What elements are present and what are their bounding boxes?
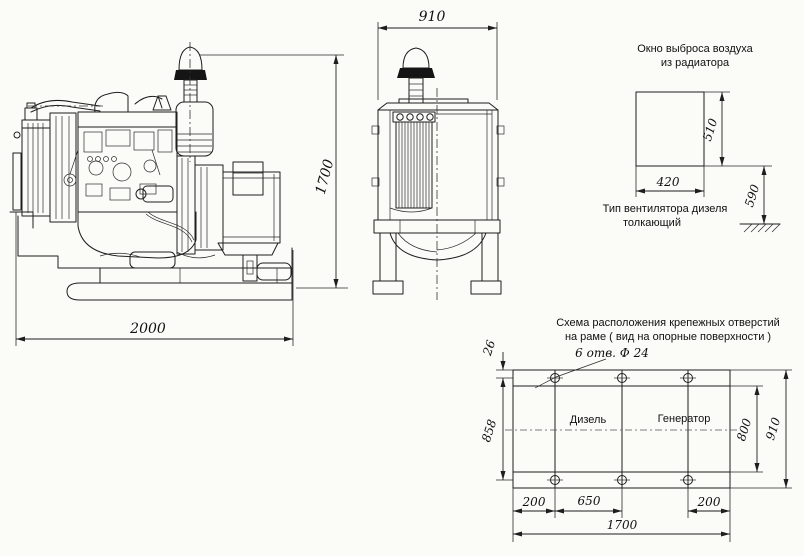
- fan-type-note-line1: Тип вентилятора дизеля: [603, 203, 728, 215]
- front-view-drawing: 910: [372, 9, 504, 300]
- fan-type-note-line2: толкающий: [623, 217, 681, 229]
- terminal-box: [233, 162, 263, 195]
- dim-inner-span: 800: [734, 416, 755, 442]
- dim-overall-length: 2000: [16, 212, 293, 346]
- frame-plan-title-line1: Схема расположения крепежных отверстий: [556, 317, 780, 329]
- dim-end-offset-left: 200: [522, 495, 546, 509]
- base-frame-side: [10, 212, 292, 300]
- ground-hatch-icon: [740, 224, 780, 232]
- label-generator: Генератор: [658, 413, 711, 425]
- holes-count-note: 6 отв. Ф 24: [575, 346, 649, 360]
- fan-hub: [64, 174, 76, 186]
- dim-hole-pitch: 650: [578, 494, 601, 508]
- frame-plan-diagram: Схема расположения крепежных отверстий н…: [479, 317, 792, 542]
- air-window-title-line1: Окно выброса воздуха: [637, 43, 753, 55]
- dim-overall-height-value: 1700: [313, 158, 338, 197]
- air-cleaner-side: [174, 42, 213, 162]
- dim-overall-width: 910: [378, 9, 497, 100]
- label-diesel: Дизель: [570, 414, 607, 426]
- radiator-cabinet-front: [372, 99, 504, 220]
- dim-overall-length-value: 2000: [129, 321, 166, 337]
- dim-frame-width: 910: [763, 415, 784, 441]
- dim-overall-width-value: 910: [419, 9, 446, 25]
- dim-end-offset-right: 200: [697, 495, 721, 509]
- dim-air-window-width: 420: [656, 175, 680, 189]
- dim-holes-length: 1700: [607, 518, 638, 532]
- dim-air-window-ground: 590: [742, 182, 763, 208]
- oil-pan: [78, 212, 196, 258]
- dim-air-window-height: 510: [700, 116, 721, 142]
- air-window-outline: [636, 92, 704, 166]
- holes-note-leader: [535, 359, 606, 388]
- air-window-diagram: Окно выброса воздуха из радиатора 510 42…: [603, 43, 780, 232]
- dim-hole-rows-span: 858: [479, 417, 500, 443]
- air-cleaner-front: [397, 48, 435, 103]
- side-view-drawing: 2000 1700: [10, 42, 348, 346]
- technical-drawing: 2000 1700 910: [0, 0, 804, 556]
- drawing-sheet: 2000 1700 910: [0, 0, 804, 556]
- generator-side: [177, 156, 280, 281]
- dim-edge-offset: 26: [480, 338, 498, 358]
- air-window-title-line2: из радиатора: [661, 57, 730, 69]
- skid: [67, 283, 292, 300]
- frame-plan-title-line2: на раме ( вид на опорные поверхности ): [565, 331, 771, 343]
